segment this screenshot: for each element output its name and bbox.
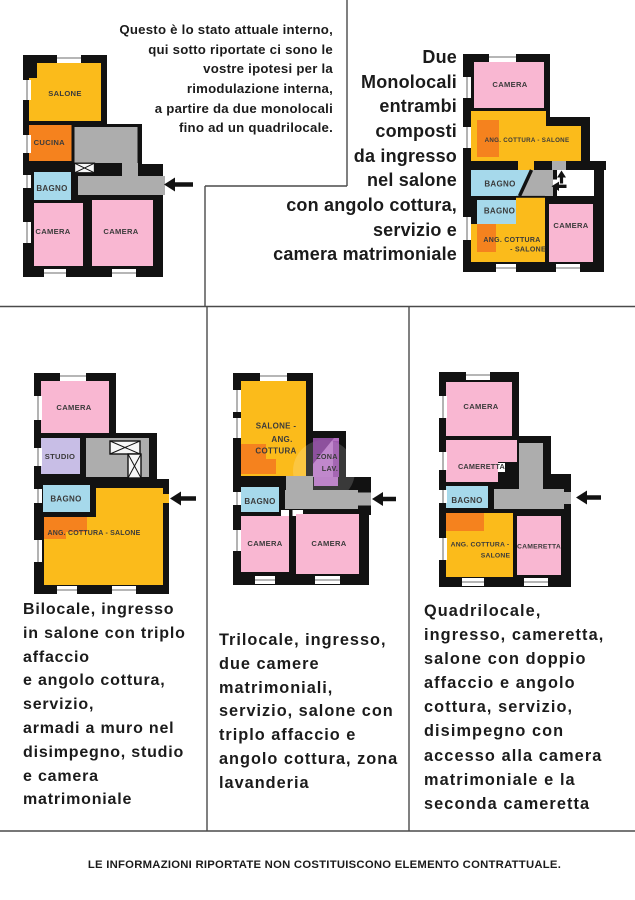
svg-text:- SALONE: - SALONE	[510, 247, 546, 254]
svg-text:CAMERA: CAMERA	[553, 221, 588, 230]
svg-text:CAMERA: CAMERA	[35, 227, 70, 236]
svg-text:BAGNO: BAGNO	[451, 496, 482, 505]
svg-text:CAMERA: CAMERA	[463, 402, 498, 411]
svg-text:CAMERETTA: CAMERETTA	[458, 462, 506, 471]
svg-text:COTTURA: COTTURA	[255, 447, 296, 456]
svg-text:ANG. COTTURA -: ANG. COTTURA -	[451, 542, 510, 549]
svg-text:SALONE: SALONE	[48, 89, 81, 98]
svg-text:ANG. COTTURA - SALONE: ANG. COTTURA - SALONE	[485, 137, 570, 144]
svg-text:BAGNO: BAGNO	[36, 184, 67, 193]
svg-text:STUDIO: STUDIO	[45, 452, 76, 461]
svg-text:CAMERA: CAMERA	[56, 403, 91, 412]
svg-text:BAGNO: BAGNO	[244, 497, 275, 506]
svg-text:BAGNO: BAGNO	[484, 180, 515, 189]
svg-text:SALONE: SALONE	[481, 553, 511, 560]
svg-text:CUCINA: CUCINA	[34, 138, 66, 147]
svg-text:CAMERA: CAMERA	[247, 539, 282, 548]
svg-text:LAV.: LAV.	[322, 464, 338, 473]
svg-text:ANG. COTTURA - SALONE: ANG. COTTURA - SALONE	[48, 530, 141, 537]
svg-text:BAGNO: BAGNO	[484, 207, 515, 216]
svg-text:BAGNO: BAGNO	[50, 495, 81, 504]
svg-text:CAMERA: CAMERA	[311, 539, 346, 548]
svg-text:ZONA: ZONA	[316, 452, 338, 461]
svg-text:CAMERA: CAMERA	[103, 227, 138, 236]
svg-text:CAMERETTA: CAMERETTA	[517, 544, 561, 551]
svg-text:ANG.: ANG.	[271, 435, 292, 444]
svg-text:SALONE -: SALONE -	[256, 422, 297, 431]
svg-text:CAMERA: CAMERA	[492, 80, 527, 89]
svg-text:ANG. COTTURA: ANG. COTTURA	[483, 237, 540, 244]
